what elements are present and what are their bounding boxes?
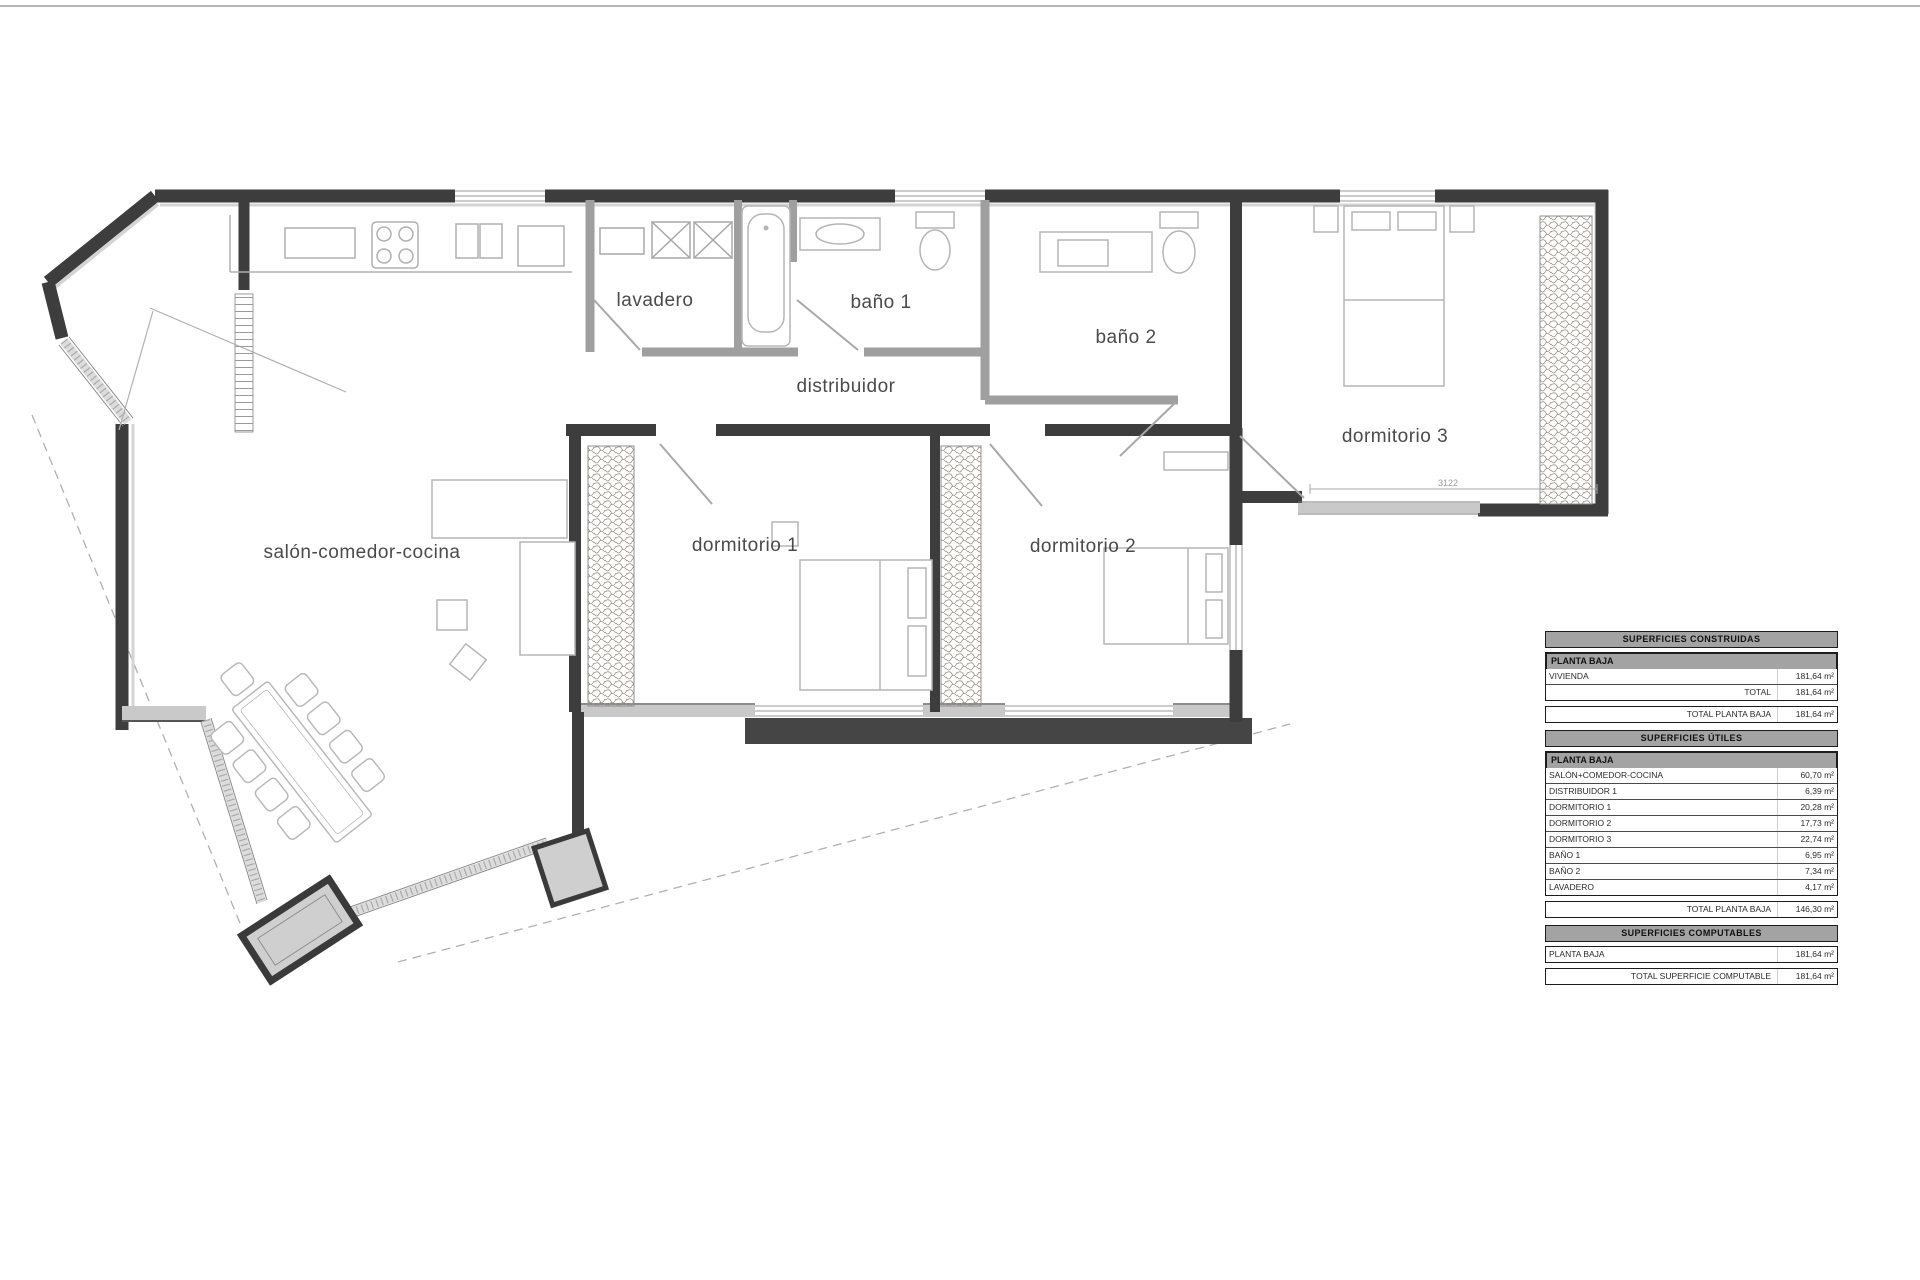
table-row-value: 181,64 m² [1777, 685, 1837, 700]
door-dorm2 [990, 444, 1042, 506]
table-row: PLANTA BAJA181,64 m² [1546, 947, 1837, 962]
table-row: DORMITORIO 217,73 m² [1546, 816, 1837, 832]
table-section-header: SUPERFICIES CONSTRUIDAS [1545, 631, 1838, 648]
table-section: SUPERFICIES CONSTRUIDASPLANTA BAJAVIVIEN… [1545, 631, 1838, 723]
table-row-label: VIVIENDA [1546, 669, 1771, 684]
dorm1-furniture [588, 446, 932, 706]
table-row-value: 6,95 m² [1777, 848, 1837, 863]
table-total-row: TOTAL PLANTA BAJA181,64 m² [1546, 707, 1837, 722]
nightstand [1450, 206, 1474, 232]
door-dorm3 [1240, 436, 1304, 498]
bed-dorm3 [1344, 206, 1444, 386]
toilet-icon [916, 212, 954, 270]
washer-icon [652, 222, 690, 258]
window-dorm3-south [1298, 502, 1480, 514]
table-row: LAVADERO4,17 m² [1546, 880, 1837, 895]
table-total-row: TOTAL SUPERFICIE COMPUTABLE181,64 m² [1546, 969, 1837, 984]
dimension-label: 3122 [1438, 478, 1458, 488]
fridge [518, 226, 564, 266]
nightstand [1314, 206, 1338, 232]
salon-glazing [59, 337, 606, 981]
stove-icon [372, 222, 418, 268]
wardrobe-dorm1 [588, 446, 634, 706]
room-label-bano2: baño 2 [1095, 327, 1156, 349]
kitchen-counter [230, 215, 572, 272]
room-label-dormitorio3: dormitorio 3 [1342, 426, 1448, 448]
table-body: PLANTA BAJASALÓN+COMEDOR-COCINA60,70 m²D… [1545, 751, 1838, 896]
table-row-label: DORMITORIO 1 [1546, 800, 1771, 815]
table-row: SALÓN+COMEDOR-COCINA60,70 m² [1546, 768, 1837, 784]
table-row-label: PLANTA BAJA [1546, 947, 1771, 962]
table-row-value: 181,64 m² [1777, 707, 1837, 722]
table-row-value: 6,39 m² [1777, 784, 1837, 799]
table-row-value: 7,34 m² [1777, 864, 1837, 879]
table-row-right-label: TOTAL PLANTA BAJA [1687, 902, 1777, 917]
table-row: BAÑO 16,95 m² [1546, 848, 1837, 864]
terrace-edge [745, 718, 1252, 744]
bathtub-icon [742, 206, 790, 346]
table-row-label: BAÑO 1 [1546, 848, 1771, 863]
door-entrance [119, 308, 346, 430]
sink-counter [800, 218, 880, 250]
page: 3122 lavadero baño 1 baño 2 distribuidor… [0, 0, 1920, 1280]
table-row-value: 181,64 m² [1777, 669, 1837, 684]
table-body: PLANTA BAJAVIVIENDA181,64 m²TOTAL181,64 … [1545, 652, 1838, 701]
table-row-value: 181,64 m² [1777, 969, 1837, 984]
table-body: PLANTA BAJA181,64 m² [1545, 946, 1838, 963]
table-row: DISTRIBUIDOR 16,39 m² [1546, 784, 1837, 800]
table-row-label: DORMITORIO 3 [1546, 832, 1771, 847]
room-label-distribuidor: distribuidor [797, 376, 896, 398]
lavadero-fixtures [600, 222, 732, 258]
table-row-value: 181,64 m² [1777, 947, 1837, 962]
kitchen-unit-1 [456, 224, 478, 258]
table-row-value: 17,73 m² [1777, 816, 1837, 831]
room-label-salon: salón-comedor-cocina [264, 542, 461, 564]
table-row: BAÑO 27,34 m² [1546, 864, 1837, 880]
table-section: SUPERFICIES ÚTILESPLANTA BAJASALÓN+COMED… [1545, 730, 1838, 918]
surface-table: SUPERFICIES CONSTRUIDASPLANTA BAJAVIVIEN… [1545, 631, 1838, 992]
table-row-label: LAVADERO [1546, 880, 1771, 895]
pouf [450, 644, 486, 680]
shelving-ladder [235, 294, 253, 432]
table-total-box: TOTAL PLANTA BAJA181,64 m² [1545, 706, 1838, 723]
table-total-box: TOTAL PLANTA BAJA146,30 m² [1545, 901, 1838, 918]
table-row: TOTAL181,64 m² [1546, 685, 1837, 700]
bed-dorm2 [1104, 548, 1228, 644]
table-row-label: SALÓN+COMEDOR-COCINA [1546, 768, 1771, 783]
door-dorm1 [660, 444, 712, 504]
dorm3-furniture [1314, 206, 1592, 504]
table-row-label: DORMITORIO 2 [1546, 816, 1771, 831]
room-label-bano1: baño 1 [850, 292, 911, 314]
table-row-label: DISTRIBUIDOR 1 [1546, 784, 1771, 799]
table-subheader: PLANTA BAJA [1546, 752, 1837, 768]
dorm2-furniture [941, 446, 1228, 706]
table-row-value: 4,17 m² [1777, 880, 1837, 895]
table-row-right-label: TOTAL [1744, 685, 1777, 700]
table-total-row: TOTAL PLANTA BAJA146,30 m² [1546, 902, 1837, 917]
window-entry-angled [59, 337, 133, 426]
room-label-lavadero: lavadero [617, 290, 694, 312]
table-row-label: BAÑO 2 [1546, 864, 1771, 879]
south-wall [572, 703, 1252, 744]
table-section-header: SUPERFICIES ÚTILES [1545, 730, 1838, 747]
table-row-value: 22,74 m² [1777, 832, 1837, 847]
salon-furniture [184, 480, 575, 864]
bano2-fixtures [1040, 212, 1198, 273]
window-dorm2-east [1226, 545, 1246, 650]
table-section-header: SUPERFICIES COMPUTABLES [1545, 925, 1838, 942]
bano1-fixtures [800, 212, 954, 270]
kitchen [230, 215, 572, 432]
door-bano1 [797, 300, 858, 350]
table-row: VIVIENDA181,64 m² [1546, 669, 1837, 685]
table-total-box: TOTAL SUPERFICIE COMPUTABLE181,64 m² [1545, 968, 1838, 985]
wardrobe-dorm3 [1540, 216, 1592, 504]
kitchen-sink [285, 228, 355, 258]
table-row-right-label: TOTAL PLANTA BAJA [1687, 707, 1777, 722]
toilet-icon [1160, 212, 1198, 273]
site-dashed-lines [32, 415, 1290, 962]
kitchen-unit-2 [480, 224, 502, 258]
desk [1164, 452, 1228, 470]
table-row-right-label: TOTAL SUPERFICIE COMPUTABLE [1631, 969, 1777, 984]
table-row-value: 60,70 m² [1777, 768, 1837, 783]
table-subheader: PLANTA BAJA [1546, 653, 1837, 669]
room-label-dormitorio1: dormitorio 1 [692, 535, 798, 557]
table-row: DORMITORIO 322,74 m² [1546, 832, 1837, 848]
laundry-sink [600, 228, 644, 254]
room-label-dormitorio2: dormitorio 2 [1030, 536, 1136, 558]
wardrobe-dorm2 [941, 446, 981, 706]
table-row: DORMITORIO 120,28 m² [1546, 800, 1837, 816]
table-row-value: 20,28 m² [1777, 800, 1837, 815]
bed-dorm1 [800, 560, 932, 690]
table-row-value: 146,30 m² [1777, 902, 1837, 917]
table-section: SUPERFICIES COMPUTABLESPLANTA BAJA181,64… [1545, 925, 1838, 985]
dryer-icon [694, 222, 732, 258]
coffee-table [437, 600, 467, 630]
window-salon-se [350, 838, 550, 917]
